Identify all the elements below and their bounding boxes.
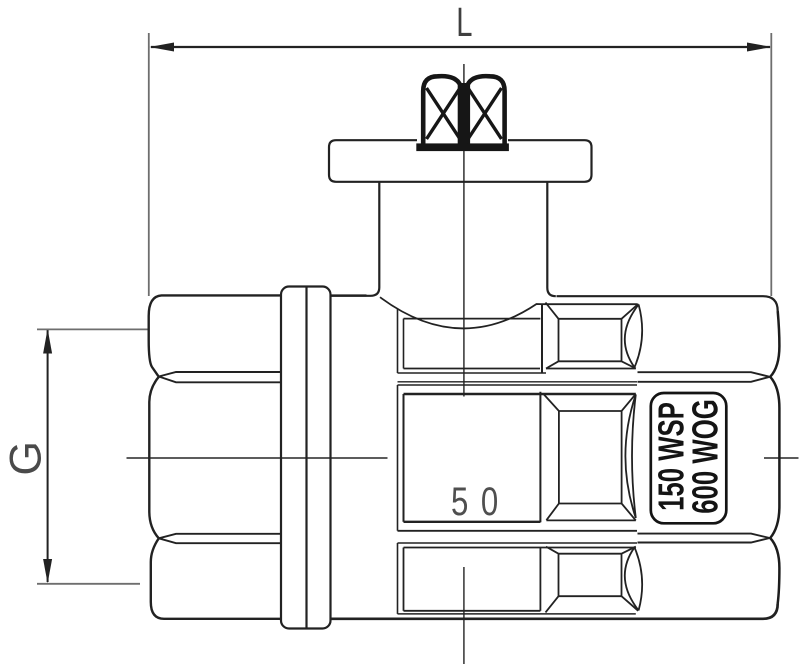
svg-text:G: G	[1, 441, 50, 476]
svg-text:600 WOG: 600 WOG	[685, 399, 725, 514]
svg-text:L: L	[456, 1, 472, 46]
svg-text:50: 50	[451, 479, 511, 524]
